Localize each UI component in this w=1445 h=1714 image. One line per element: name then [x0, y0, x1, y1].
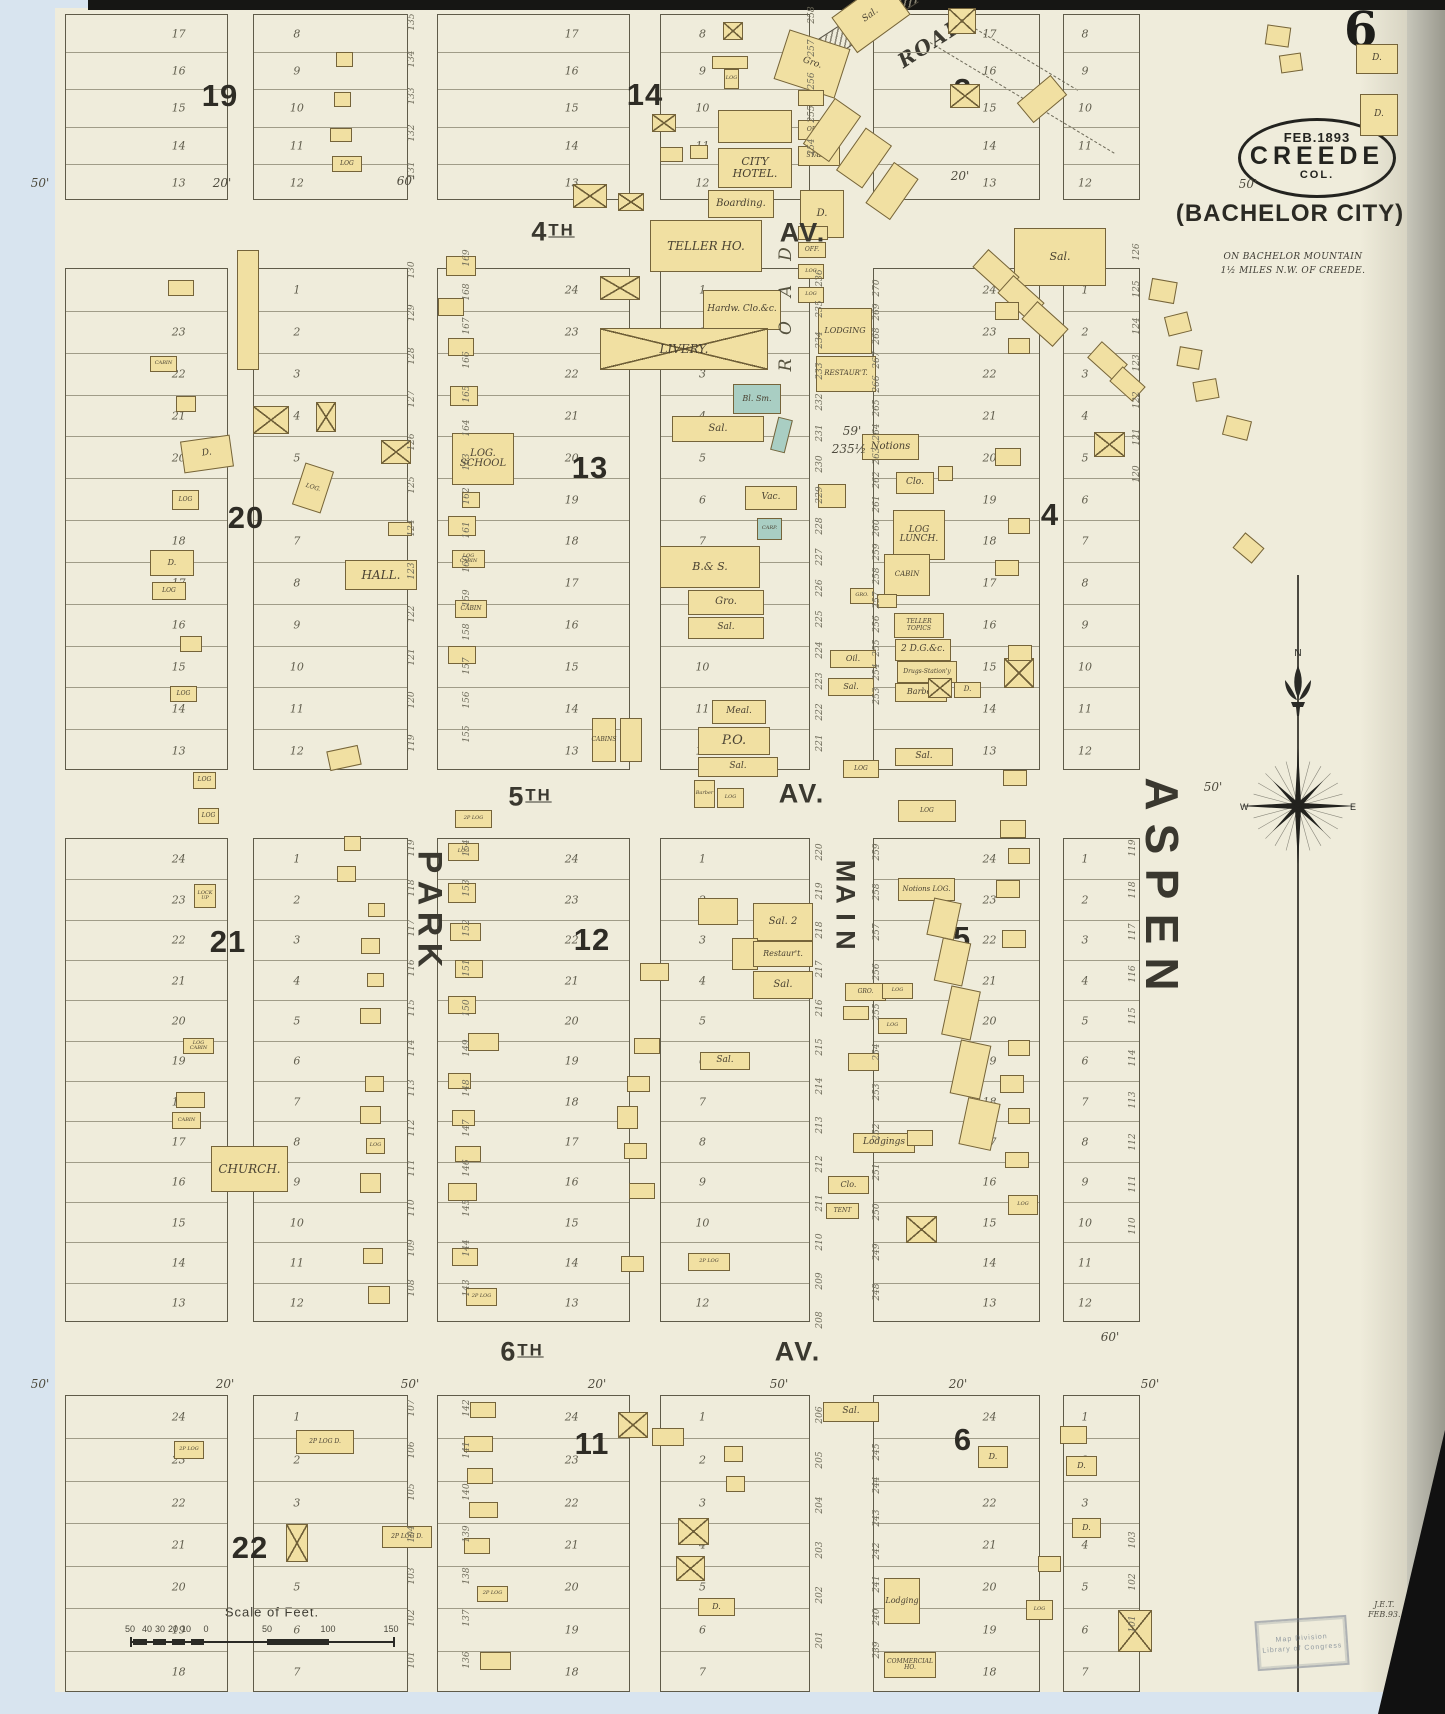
street-dimension: 60' — [1101, 1330, 1120, 1344]
lot-number: 2 — [1082, 893, 1089, 906]
lot-number: 3 — [1082, 1496, 1089, 1509]
address-number: 259 — [872, 543, 882, 560]
lot-number: 14 — [172, 702, 186, 715]
building — [286, 1524, 308, 1562]
lot-number: 6 — [293, 1055, 300, 1068]
building — [652, 1428, 684, 1446]
scale-tick-label: 40 — [142, 1624, 152, 1634]
lot-number: 23 — [172, 326, 186, 339]
address-number: 113 — [407, 1079, 417, 1096]
lot: 13 — [66, 164, 227, 201]
street-label-road-letter: A — [776, 285, 796, 297]
lot-number: 1 — [699, 853, 706, 866]
street-label-avenue: AV. — [779, 779, 826, 810]
building — [723, 22, 743, 40]
lot-number: 15 — [565, 102, 579, 115]
address-number: 127 — [407, 390, 417, 407]
address-number: 128 — [407, 347, 417, 364]
building — [676, 1556, 705, 1581]
lot-number: 16 — [983, 65, 997, 78]
address-number: 156 — [462, 691, 472, 708]
lot-number: 13 — [565, 1297, 579, 1310]
lot-number: 15 — [983, 1216, 997, 1229]
lot: 1 — [661, 839, 809, 879]
address-number: 241 — [872, 1575, 882, 1592]
street-label-park-letter: R — [410, 912, 449, 937]
lot-number: 11 — [290, 1256, 304, 1269]
lot-number: 6 — [1082, 1055, 1089, 1068]
street-label-6th: 6TH — [500, 1337, 543, 1368]
fleur-de-lis-icon — [1285, 666, 1311, 716]
lot-number: 6 — [1082, 1623, 1089, 1636]
address-number: 243 — [872, 1509, 882, 1526]
address-number: 219 — [815, 882, 825, 899]
address-number: 115 — [1128, 1007, 1138, 1024]
lot: 19 — [66, 478, 227, 520]
street-dimension: 20' — [951, 169, 970, 183]
building-log: LOG — [366, 1138, 385, 1154]
lot-number: 24 — [565, 1411, 579, 1424]
lot: 22 — [66, 353, 227, 395]
address-number: 102 — [1128, 1573, 1138, 1590]
address-number: 252 — [872, 1123, 882, 1140]
street-label-main-letter: M — [830, 860, 861, 883]
lot: 8 — [254, 15, 407, 52]
building-log: LOG — [882, 983, 913, 999]
lot-number: 17 — [565, 577, 579, 590]
lot-number: 11 — [1078, 139, 1092, 152]
lot: 3 — [254, 353, 407, 395]
lot-number: 13 — [172, 176, 186, 189]
lot-number: 19 — [565, 1623, 579, 1636]
scale-tick-label: 50 — [262, 1624, 272, 1634]
address-number: 245 — [872, 1443, 882, 1460]
lot-number: 2 — [1082, 326, 1089, 339]
address-number: 134 — [407, 50, 417, 67]
lot-number: 3 — [699, 934, 706, 947]
address-number: 210 — [815, 1233, 825, 1250]
building-restaur-t: RESTAUR'T. — [816, 356, 876, 392]
building — [367, 973, 384, 987]
address-number: 158 — [462, 623, 472, 640]
address-number: 111 — [407, 1159, 417, 1176]
lot: 15 — [66, 1202, 227, 1242]
address-number: 166 — [462, 351, 472, 368]
lot-number: 21 — [983, 1538, 997, 1551]
address-number: 270 — [872, 279, 882, 296]
lot-number: 11 — [290, 702, 304, 715]
building-notions: Notions — [862, 434, 919, 460]
lot-number: 8 — [293, 577, 300, 590]
address-number: 262 — [872, 471, 882, 488]
lot-number: 12 — [290, 744, 304, 757]
building — [618, 1412, 648, 1438]
lot-number: 22 — [565, 368, 579, 381]
address-number: 165 — [462, 385, 472, 402]
lot-number: 19 — [983, 493, 997, 506]
building — [469, 1502, 498, 1518]
lot-number: 10 — [695, 102, 709, 115]
building-log: LOG — [898, 800, 956, 822]
lot-number: 11 — [290, 139, 304, 152]
building — [470, 1402, 496, 1418]
lot: 4 — [1064, 395, 1139, 437]
stamp-line-2: Library of Congress — [1262, 1642, 1342, 1655]
address-number: 150 — [462, 999, 472, 1016]
address-number: 269 — [872, 303, 882, 320]
lot-number: 14 — [565, 1256, 579, 1269]
lot: 17 — [66, 15, 227, 52]
lot-number: 23 — [565, 326, 579, 339]
lot: 7 — [661, 1651, 809, 1693]
lot-number: 1 — [699, 1411, 706, 1424]
address-number: 137 — [462, 1609, 472, 1626]
lot: 18 — [66, 1651, 227, 1693]
surveyor-date: FEB.93. — [1368, 1610, 1401, 1620]
lot: 8 — [661, 1121, 809, 1161]
lot-number: 8 — [699, 27, 706, 40]
address-number: 146 — [462, 1159, 472, 1176]
surveyor-note: J.E.T. FEB.93. — [1368, 1600, 1401, 1619]
lot-number: 23 — [983, 893, 997, 906]
address-number: 143 — [462, 1279, 472, 1296]
building — [1008, 645, 1032, 661]
building-2p-log: 2P LOG — [477, 1586, 508, 1602]
address-number: 121 — [407, 648, 417, 665]
building — [938, 466, 953, 481]
building — [336, 52, 353, 67]
address-number: 119 — [407, 734, 417, 751]
address-number: 221 — [815, 734, 825, 751]
lot-number: 19 — [983, 1623, 997, 1636]
address-number: 261 — [872, 495, 882, 512]
lot: 14 — [66, 687, 227, 729]
address-number: 258 — [872, 883, 882, 900]
address-number: 264 — [872, 423, 882, 440]
lot-number: 6 — [699, 493, 706, 506]
building — [337, 866, 356, 882]
building-clo: Clo. — [828, 1176, 869, 1194]
lot: 2 — [254, 311, 407, 353]
building-sal: Sal. — [688, 617, 764, 639]
address-number: 214 — [815, 1077, 825, 1094]
block-number: 14 — [627, 77, 663, 113]
lot: 9 — [1064, 52, 1139, 89]
street-dimension: 50' — [1141, 1377, 1160, 1391]
lot-number: 7 — [293, 1666, 300, 1679]
lot: 17 — [66, 1121, 227, 1161]
lot-number: 20 — [172, 1014, 186, 1027]
lot: 8 — [1064, 15, 1139, 52]
location-note-2: 1½ MILES N.W. OF CREEDE. — [1178, 266, 1408, 276]
street-dimension: 20' — [213, 176, 232, 190]
lot-number: 15 — [983, 102, 997, 115]
lot: 22 — [874, 353, 1039, 395]
building-cabins: CABINS — [592, 718, 616, 762]
block-20-right-column: 123456789101112 — [253, 268, 408, 770]
lot-number: 2 — [293, 1454, 300, 1467]
lot-number: 5 — [699, 1581, 706, 1594]
building-log: LOG — [198, 808, 219, 824]
lot-number: 7 — [1082, 535, 1089, 548]
building — [1002, 930, 1026, 948]
lot-number: 7 — [699, 1095, 706, 1108]
lot-number: 7 — [293, 535, 300, 548]
sanborn-map-canvas: 6 FEB.1893 CREEDE COL. (BACHELOR CITY) O… — [0, 0, 1445, 1714]
lot: 8 — [1064, 562, 1139, 604]
address-number: 254 — [872, 663, 882, 680]
scale-tick-label: 50 — [125, 1624, 135, 1634]
address-number: 257 — [872, 591, 882, 608]
address-number: 152 — [462, 919, 472, 936]
block-20-left-column: 242322212019181716151413 — [65, 268, 228, 770]
lot-number: 10 — [290, 102, 304, 115]
building — [573, 184, 607, 208]
lot-number: 15 — [172, 1216, 186, 1229]
building-d: D. — [1072, 1518, 1101, 1538]
lot-number: 24 — [983, 853, 997, 866]
building-log: LOG — [878, 1018, 907, 1034]
building — [906, 1216, 937, 1243]
lot-number: 23 — [565, 893, 579, 906]
lot-number: 1 — [1082, 853, 1089, 866]
street-label-main-letter: I — [830, 913, 861, 921]
address-number: 205 — [815, 1451, 825, 1468]
building-teller-topics: TELLER TOPICS — [894, 613, 944, 638]
building-oil: Oil. — [830, 650, 876, 668]
lot: 10 — [1064, 646, 1139, 688]
scale-tick-label: 0 — [203, 1624, 208, 1634]
building — [620, 718, 642, 762]
lot: 12 — [254, 164, 407, 201]
address-number: 115 — [407, 999, 417, 1016]
badge-state: COL. — [1241, 169, 1393, 181]
lot: 9 — [254, 52, 407, 89]
lot-number: 15 — [983, 660, 997, 673]
building-meal: Meal. — [712, 700, 766, 724]
address-number: 123 — [407, 562, 417, 579]
building — [480, 1652, 511, 1670]
building — [1003, 770, 1027, 786]
lot: 22 — [66, 1481, 227, 1523]
address-number: 130 — [407, 261, 417, 278]
compass-north-label: N — [1294, 648, 1301, 659]
street-label-aspen-letter: P — [1135, 869, 1189, 900]
building-sal: Sal. — [895, 748, 953, 766]
street-ordinal: TH — [517, 1341, 543, 1360]
lot-number: 24 — [565, 283, 579, 296]
top-binding-strip — [88, 0, 1445, 10]
address-number: 103 — [407, 1567, 417, 1584]
address-number: 235 — [815, 300, 825, 317]
lot-number: 18 — [172, 1666, 186, 1679]
location-note-1: ON BACHELOR MOUNTAIN — [1178, 252, 1408, 262]
lot-number: 10 — [1078, 102, 1092, 115]
address-number: 260 — [872, 519, 882, 536]
address-number: 256 — [807, 72, 817, 89]
lot-number: 17 — [172, 1135, 186, 1148]
address-number: 106 — [407, 1441, 417, 1458]
lot-number: 5 — [699, 451, 706, 464]
building-log: LOG — [170, 686, 197, 702]
address-number: 203 — [815, 1541, 825, 1558]
building — [1000, 1075, 1024, 1093]
address-number: 215 — [815, 1038, 825, 1055]
building — [1000, 820, 1026, 838]
building — [344, 836, 361, 851]
block-22-left-column: 24232221201918 — [65, 1395, 228, 1692]
building-2p-log: 2P LOG — [174, 1441, 204, 1459]
lot: 11 — [254, 687, 407, 729]
lot: 11 — [1064, 127, 1139, 164]
address-number: 229 — [815, 486, 825, 503]
street-label-park-letter: K — [410, 943, 449, 968]
building — [1094, 432, 1125, 457]
building — [176, 396, 196, 412]
lot: 16 — [66, 604, 227, 646]
address-number: 227 — [815, 548, 825, 565]
block-number: 13 — [572, 450, 608, 486]
lot-number: 4 — [1082, 409, 1089, 422]
building — [360, 1008, 381, 1024]
building — [368, 903, 385, 917]
address-number: 228 — [815, 517, 825, 534]
block-number: 12 — [574, 922, 610, 958]
compass-west-label: W — [1240, 802, 1249, 812]
lot-number: 3 — [293, 934, 300, 947]
building-log: LOG — [724, 69, 739, 89]
address-number: 244 — [872, 1476, 882, 1493]
lot-number: 16 — [565, 65, 579, 78]
lot-number: 20 — [983, 1581, 997, 1594]
lot: 6 — [254, 478, 407, 520]
address-number: 222 — [815, 703, 825, 720]
building-church: CHURCH. — [211, 1146, 288, 1192]
lot-number: 18 — [983, 1666, 997, 1679]
compass-east-label: E — [1350, 802, 1356, 812]
street-label-main-letter: A — [830, 884, 861, 904]
block-number: 4 — [1041, 497, 1059, 533]
scale-tick-label: 100 — [320, 1624, 335, 1634]
lot-number: 19 — [565, 493, 579, 506]
lot: 20 — [66, 1566, 227, 1608]
street-label-avenue: AV. — [780, 218, 827, 249]
building-log: LOG — [152, 582, 186, 600]
address-number: 129 — [407, 304, 417, 321]
lot-number: 9 — [1082, 1176, 1089, 1189]
address-number: 217 — [815, 960, 825, 977]
street-label-main-letter: N — [830, 930, 861, 950]
stamp-line-1: Map Division — [1275, 1633, 1327, 1644]
building-sal: Sal. — [753, 971, 813, 999]
address-number: 107 — [407, 1399, 417, 1416]
lot-number: 22 — [983, 368, 997, 381]
address-number: 213 — [815, 1116, 825, 1133]
address-number: 211 — [815, 1194, 825, 1211]
address-number: 121 — [1132, 428, 1142, 445]
address-number: 254 — [872, 1043, 882, 1060]
address-number: 225 — [815, 610, 825, 627]
address-number: 169 — [462, 249, 472, 266]
block-number: 21 — [210, 924, 246, 960]
building-vac: Vac. — [745, 486, 797, 510]
address-number: 122 — [407, 605, 417, 622]
lot: 7 — [254, 1081, 407, 1121]
address-number: 226 — [815, 579, 825, 596]
building — [467, 1468, 493, 1484]
lot-number: 17 — [565, 27, 579, 40]
street-label-park-letter: P — [410, 851, 449, 874]
lot-number: 12 — [1078, 1297, 1092, 1310]
lot-number: 7 — [1082, 1666, 1089, 1679]
lot-number: 24 — [172, 853, 186, 866]
lot-number: 13 — [983, 744, 997, 757]
lot: 13 — [66, 1283, 227, 1323]
lot: 3 — [1064, 1481, 1139, 1523]
building-d: D. — [150, 550, 194, 576]
lot-number: 14 — [565, 139, 579, 152]
lot: 10 — [661, 646, 809, 688]
building-gro: GRO. — [845, 983, 886, 1001]
lot-number: 6 — [293, 1623, 300, 1636]
address-number: 160 — [462, 555, 472, 572]
lot-number: 16 — [172, 65, 186, 78]
lot-number: 22 — [565, 1496, 579, 1509]
building-d: D. — [978, 1446, 1008, 1468]
lot: 1 — [254, 839, 407, 879]
block-3-right-column: 89101112 — [1063, 14, 1140, 200]
address-number: 161 — [462, 521, 472, 538]
scale-segment — [191, 1639, 204, 1645]
building — [724, 1446, 743, 1462]
address-number: 101 — [1128, 1615, 1138, 1632]
building — [316, 402, 336, 432]
address-number: 110 — [1128, 1217, 1138, 1234]
lot-number: 3 — [293, 1496, 300, 1509]
lot: 10 — [254, 1202, 407, 1242]
building — [718, 110, 792, 143]
address-number: 147 — [462, 1119, 472, 1136]
scale-segment — [172, 1639, 185, 1645]
street-dimension: 50' — [31, 1377, 50, 1391]
address-number: 218 — [815, 921, 825, 938]
address-number: 103 — [1128, 1531, 1138, 1548]
address-number: 251 — [872, 1163, 882, 1180]
address-number: 258 — [807, 6, 817, 23]
lot-number: 14 — [983, 1256, 997, 1269]
address-number: 141 — [462, 1441, 472, 1458]
lot-number: 12 — [1078, 744, 1092, 757]
building-d: D. — [1356, 44, 1398, 74]
lot-number: 5 — [699, 1014, 706, 1027]
address-number: 155 — [462, 725, 472, 742]
building-carp: CARP. — [757, 518, 782, 540]
address-number: 126 — [1132, 243, 1142, 260]
lot: 7 — [661, 1081, 809, 1121]
lot-number: 22 — [983, 1496, 997, 1509]
building — [253, 406, 289, 434]
building-cabin: CABIN — [884, 554, 930, 596]
lot-number: 8 — [1082, 27, 1089, 40]
lot: 5 — [661, 1000, 809, 1040]
building — [907, 1130, 933, 1146]
address-number: 139 — [462, 1525, 472, 1542]
lot-number: 4 — [1082, 974, 1089, 987]
lot-number: 21 — [565, 974, 579, 987]
block-number: 22 — [232, 1530, 268, 1566]
building — [948, 8, 976, 34]
building-lodgings: Lodgings — [853, 1133, 915, 1153]
